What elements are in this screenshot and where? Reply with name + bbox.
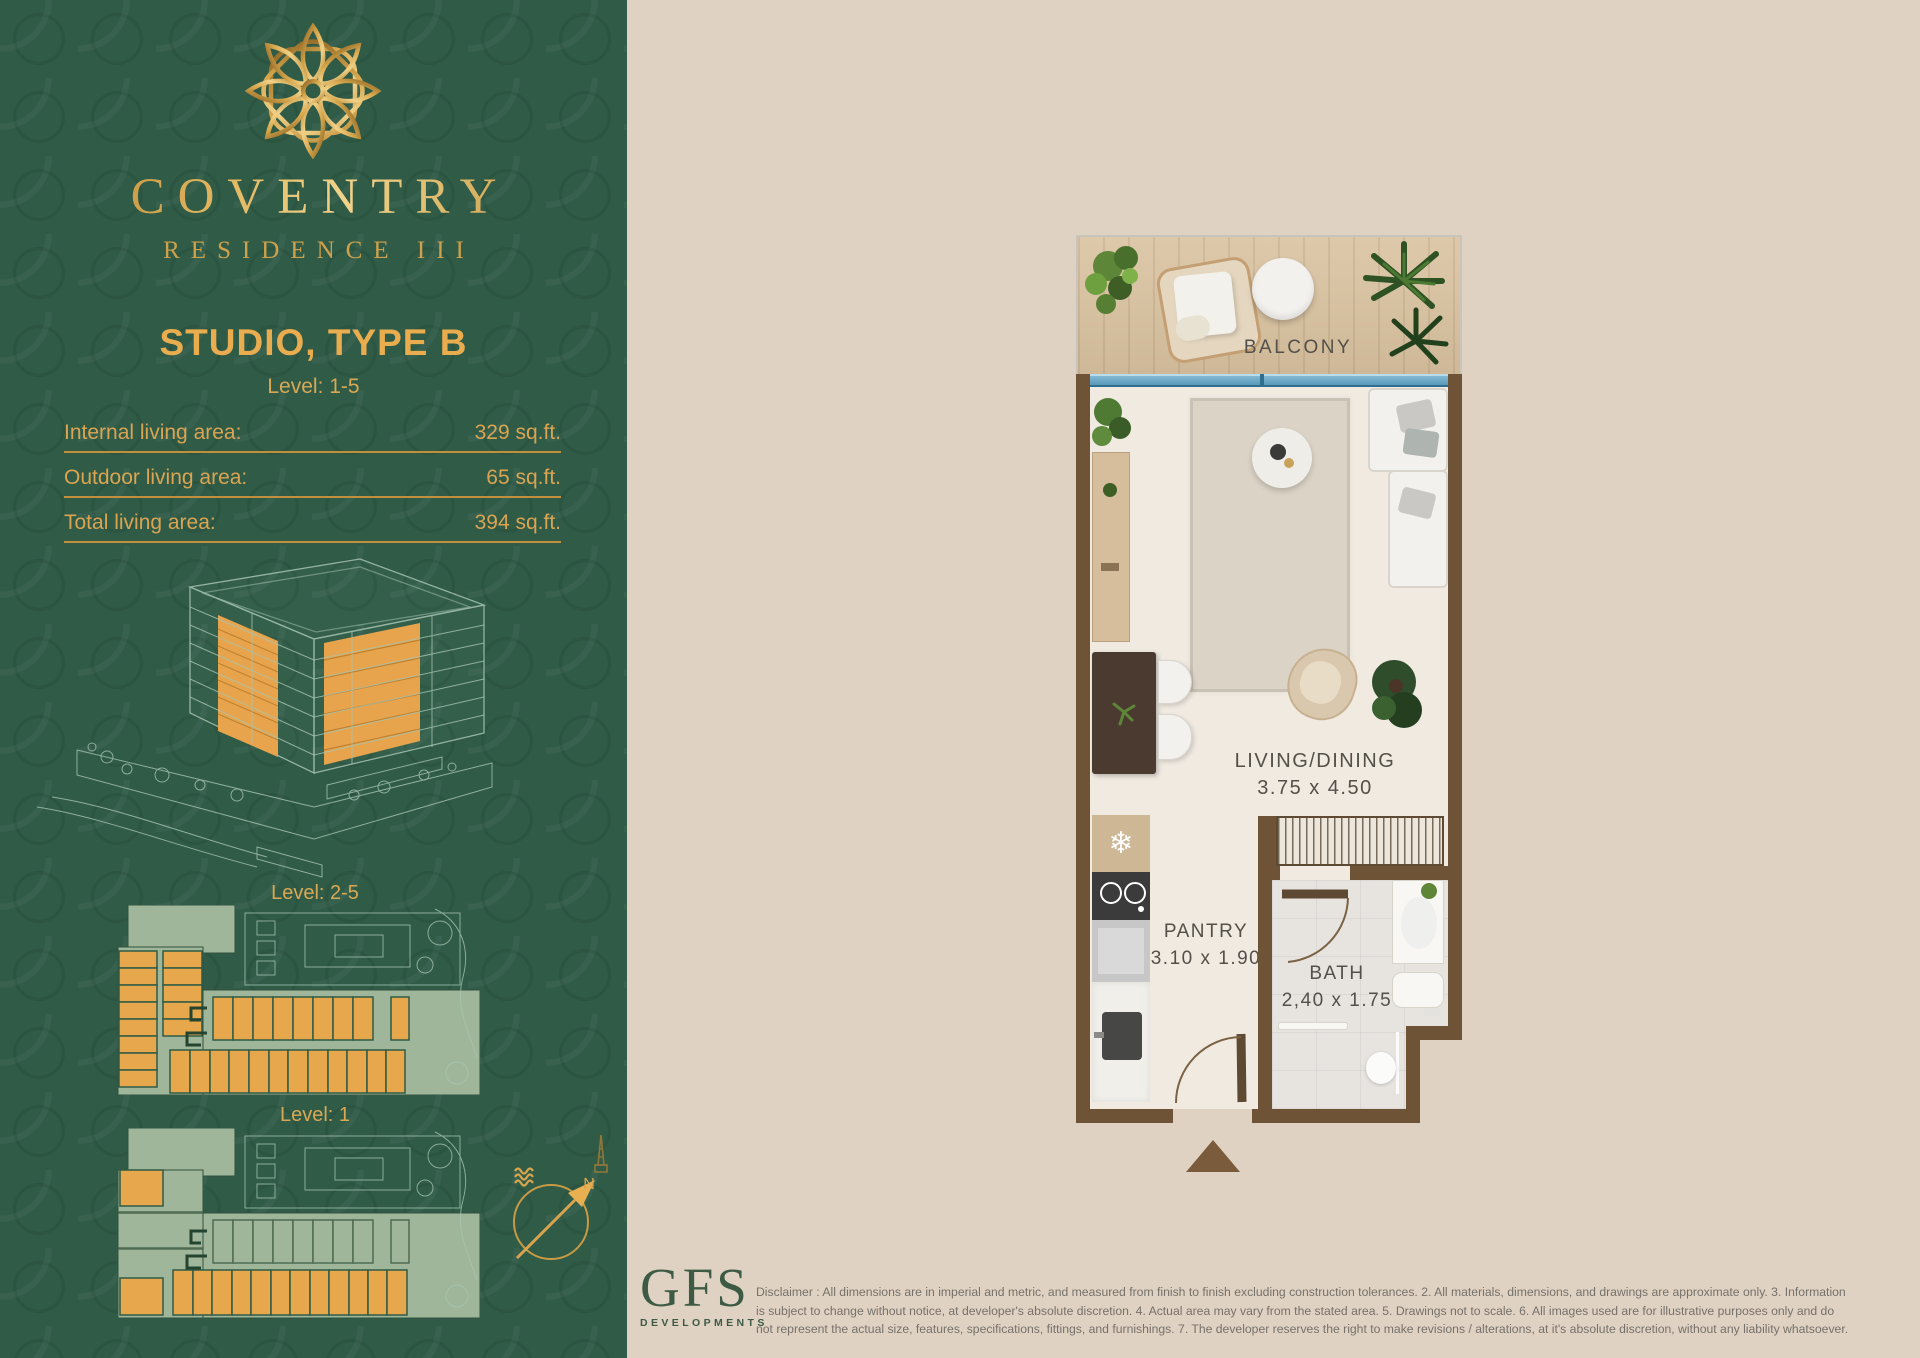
bath-door-arc <box>1288 898 1348 962</box>
developer-name: GFS <box>640 1262 768 1314</box>
brochure-page: COVENTRY RESIDENCE III STUDIO, TYPE B Le… <box>0 0 1920 1358</box>
entry-arrow-marker <box>1186 1140 1240 1172</box>
entry-door-arc <box>1176 1037 1241 1103</box>
entry-door-leaf <box>1241 1034 1242 1102</box>
disclaimer-line-2: is subject to change without notice, at … <box>756 1302 1906 1321</box>
disclaimer: Disclaimer : All dimensions are in imper… <box>756 1283 1906 1339</box>
balcony-label: BALCONY <box>1208 334 1388 361</box>
disclaimer-line-1: Disclaimer : All dimensions are in imper… <box>756 1283 1906 1302</box>
developer-logo: GFS DEVELOPMENTS <box>640 1262 768 1329</box>
door-swings <box>1076 374 1462 1174</box>
content-area: BALCONY <box>627 0 1920 1358</box>
disclaimer-line-3: not represent the actual size, features,… <box>756 1320 1906 1339</box>
developer-subtitle: DEVELOPMENTS <box>640 1317 768 1329</box>
balcony-plant-left-icon <box>1078 236 1148 322</box>
balcony-round-table <box>1252 258 1314 320</box>
